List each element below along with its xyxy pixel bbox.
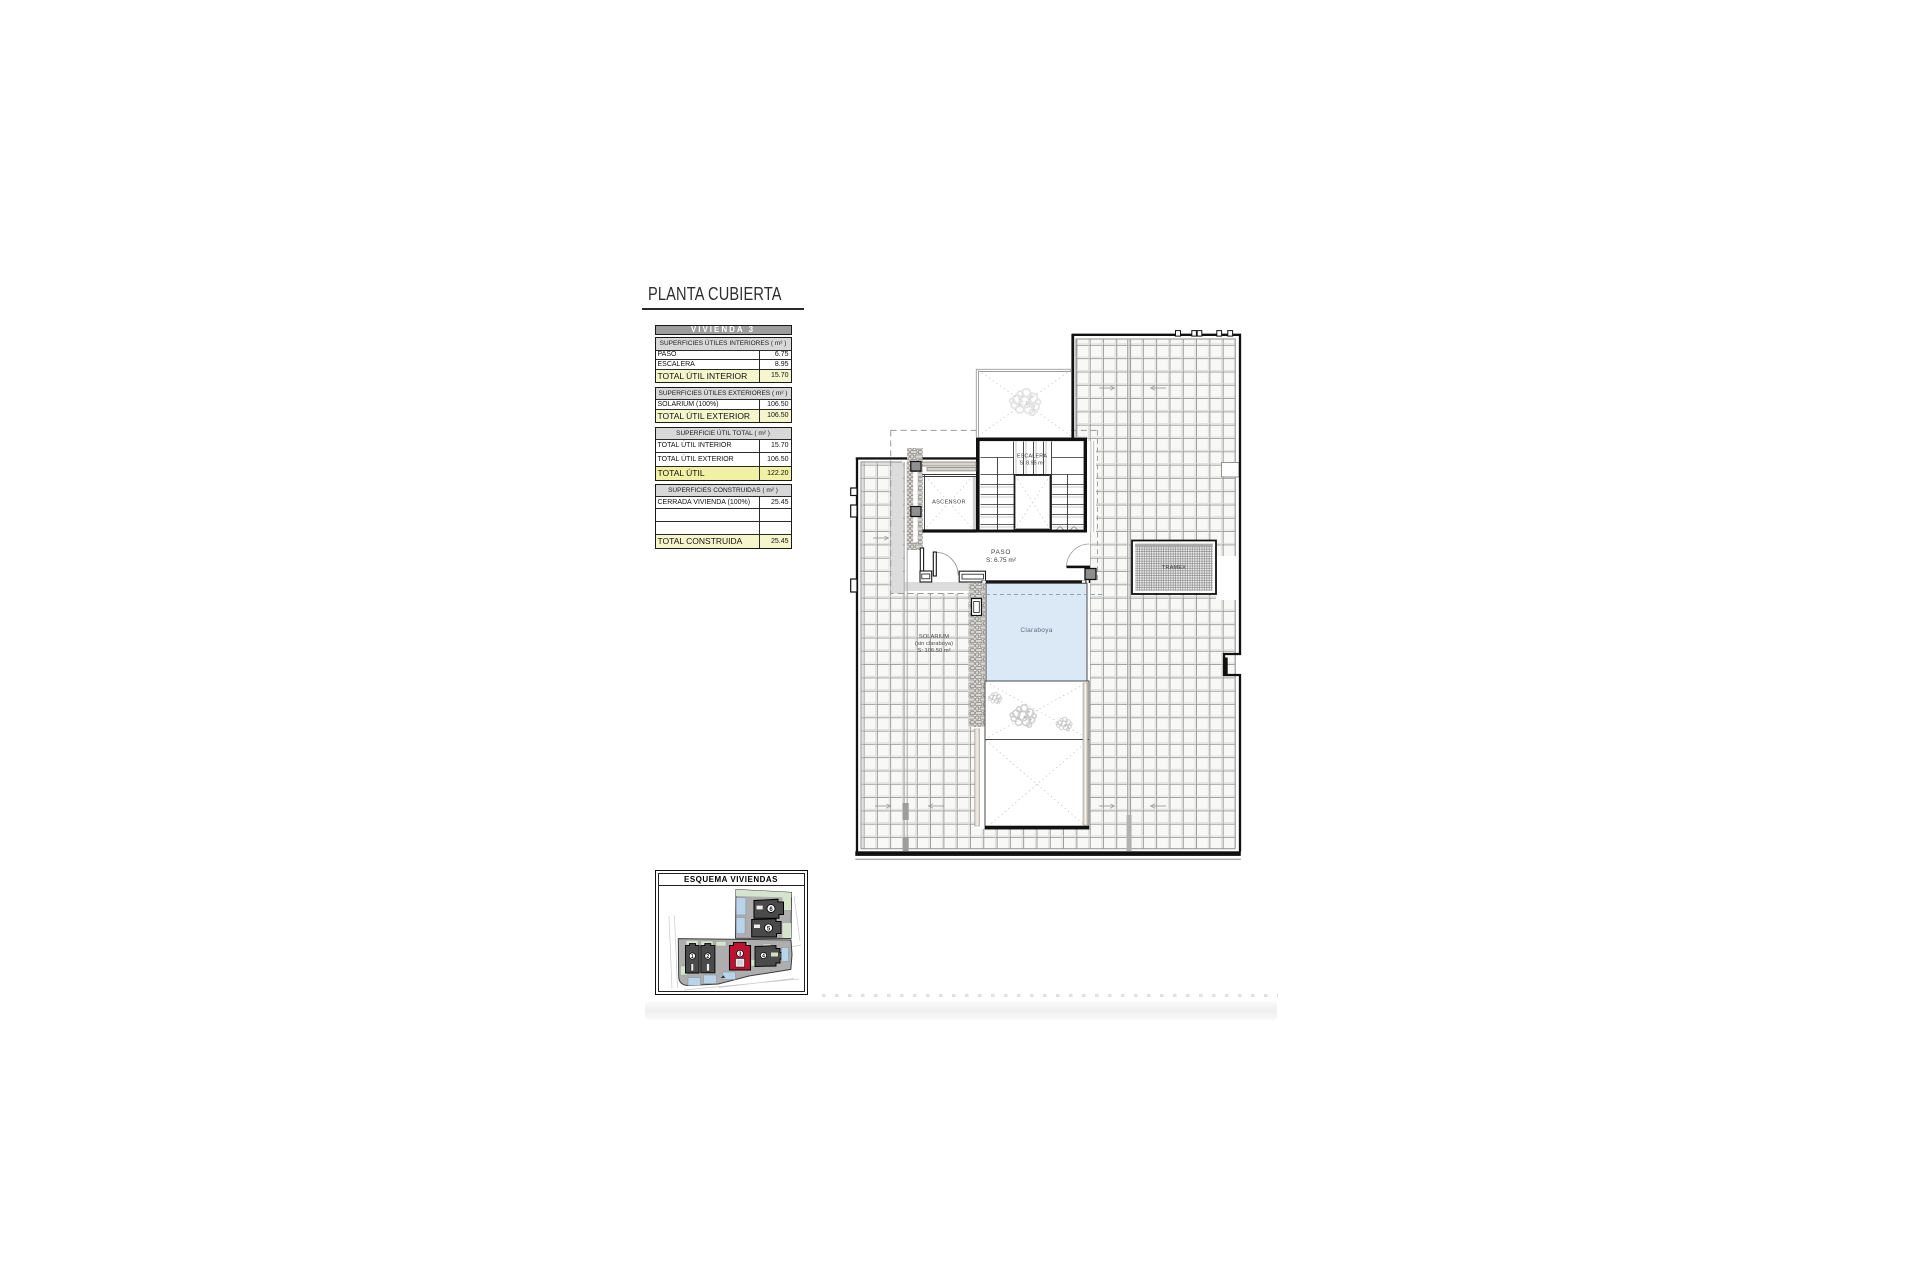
svg-text:1: 1 — [690, 954, 693, 960]
svg-text:2: 2 — [706, 954, 709, 960]
svg-text:TRAMEX: TRAMEX — [1162, 565, 1186, 571]
svg-text:S: 106.50 m²: S: 106.50 m² — [917, 648, 950, 654]
svg-text:PASO: PASO — [991, 549, 1011, 556]
svg-text:S: 6.75 m²: S: 6.75 m² — [986, 557, 1017, 564]
svg-text:Claraboya: Claraboya — [1020, 627, 1052, 634]
svg-text:ESCALERA: ESCALERA — [1017, 454, 1048, 460]
svg-text:SOLARIUM: SOLARIUM — [919, 634, 949, 640]
svg-text:S: 8.95 m²: S: 8.95 m² — [1020, 461, 1045, 467]
svg-text:4: 4 — [762, 953, 765, 959]
svg-text:(sin claraboya): (sin claraboya) — [915, 641, 953, 647]
svg-text:3: 3 — [738, 951, 741, 957]
svg-text:ASCENSOR: ASCENSOR — [932, 500, 966, 506]
